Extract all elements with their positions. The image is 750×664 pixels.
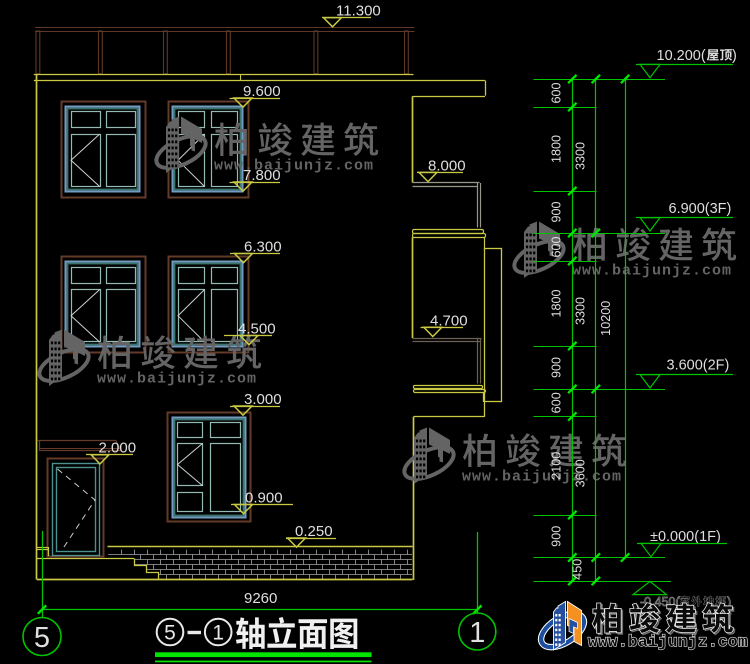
svg-text:900: 900 (550, 201, 564, 222)
svg-text:600: 600 (550, 392, 564, 413)
svg-text:3.600(2F): 3.600(2F) (667, 358, 730, 374)
svg-text:1800: 1800 (550, 135, 564, 163)
svg-text:3600: 3600 (574, 459, 588, 487)
svg-text:2100: 2100 (550, 452, 564, 480)
svg-text:1: 1 (469, 617, 485, 649)
svg-text:10200: 10200 (599, 301, 613, 336)
svg-text:9260: 9260 (244, 590, 277, 607)
svg-text:900: 900 (550, 357, 564, 378)
svg-text:): ) (732, 48, 737, 64)
svg-text:www.baijunjz.com: www.baijunjz.com (462, 469, 622, 486)
svg-text:5: 5 (34, 622, 50, 654)
svg-text:www.baijunjz.com: www.baijunjz.com (214, 158, 374, 175)
svg-text:600: 600 (550, 236, 564, 257)
svg-text:3300: 3300 (574, 297, 588, 325)
svg-text:www.baijunjz.com: www.baijunjz.com (97, 371, 257, 388)
svg-text:1: 1 (212, 622, 224, 645)
svg-text:900: 900 (550, 526, 564, 547)
svg-text:6.900(3F): 6.900(3F) (669, 201, 732, 217)
svg-text:www.baijunjz.com: www.baijunjz.com (588, 633, 748, 651)
svg-text:600: 600 (550, 82, 564, 103)
svg-text:10.200(: 10.200( (657, 48, 706, 64)
svg-text:3300: 3300 (574, 142, 588, 170)
svg-text:±0.000(1F): ±0.000(1F) (650, 529, 721, 545)
svg-text:1800: 1800 (550, 289, 564, 317)
svg-text:5: 5 (164, 622, 176, 645)
svg-text:450: 450 (571, 559, 585, 580)
